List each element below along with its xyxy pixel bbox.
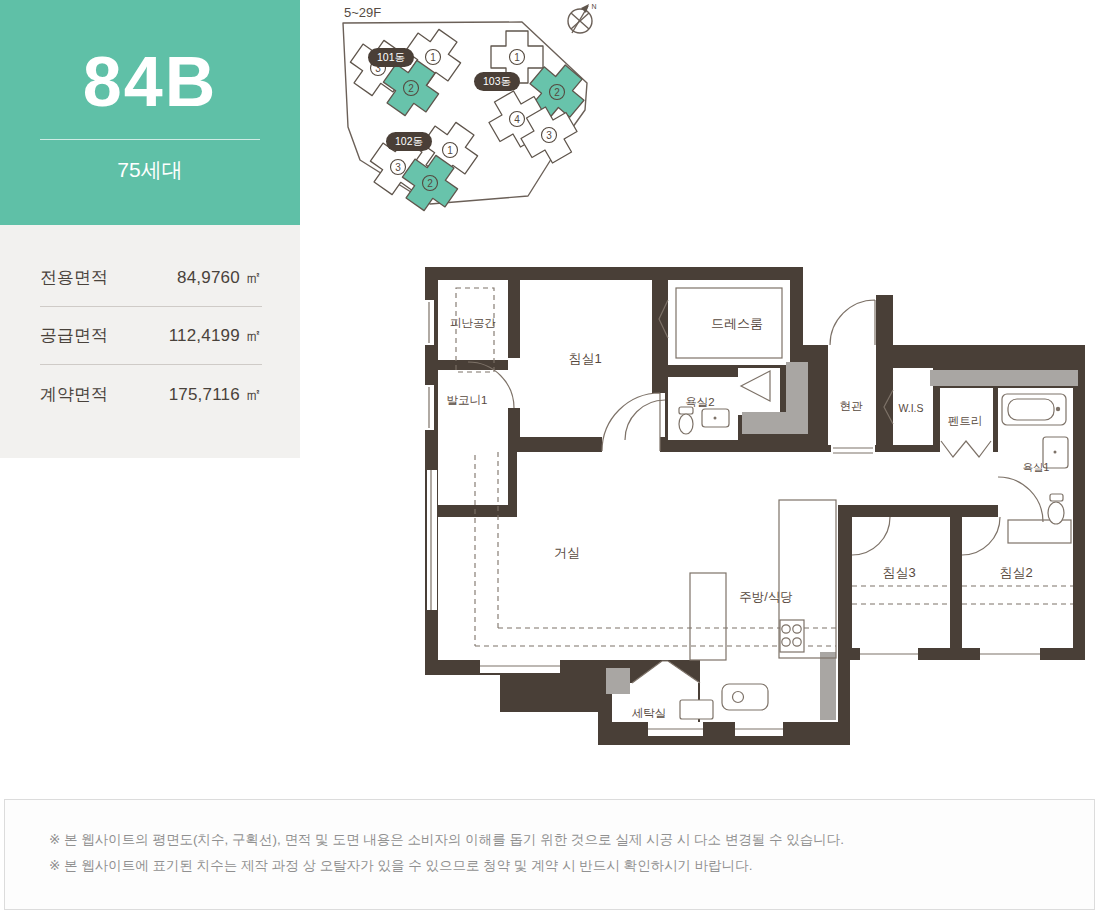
svg-text:1: 1 (447, 145, 453, 156)
svg-text:2: 2 (554, 87, 560, 98)
svg-text:1: 1 (514, 52, 520, 63)
room-label-bedroom3: 침실3 (882, 565, 915, 580)
washer (680, 700, 713, 719)
disclaimer-box: ※ 본 웹사이트의 평면도(치수, 구획선), 면적 및 도면 내용은 소비자의… (4, 799, 1095, 910)
room-label-wis: W.I.S (898, 402, 923, 414)
room-label-bedroom2: 침실2 (999, 565, 1032, 580)
svg-text:2: 2 (408, 83, 414, 94)
divider (40, 139, 260, 140)
area-label: 전용면적 (40, 266, 108, 289)
area-value: 84,9760 ㎡ (177, 266, 262, 289)
area-info-panel: 전용면적 84,9760 ㎡ 공급면적 112,4199 ㎡ 계약면적 175,… (0, 225, 300, 458)
room-label-dressroom: 드레스룸 (711, 316, 763, 331)
kitchen-sink (722, 684, 768, 710)
room-label-pantry: 펜트리 (948, 415, 983, 427)
area-label: 계약면적 (40, 383, 108, 406)
compass-icon: N (568, 3, 597, 33)
room-label-bedroom1: 침실1 (568, 351, 601, 366)
area-value: 175,7116 ㎡ (169, 383, 262, 406)
area-row-contract: 계약면적 175,7116 ㎡ (40, 365, 262, 423)
badge-101: 101동 (368, 48, 414, 67)
compass-n-label: N (591, 3, 596, 10)
households-count: 75세대 (117, 156, 182, 184)
unit-type-code: 84B (83, 47, 217, 117)
svg-text:102동: 102동 (395, 135, 423, 147)
site-plan: 5~29F N 3 1 2 3 1 2 1 2 4 3 101동 102동 10… (335, 0, 625, 215)
svg-text:101동: 101동 (377, 51, 405, 63)
area-row-exclusive: 전용면적 84,9760 ㎡ (40, 249, 262, 307)
room-label-kitchen: 주방/식당 (739, 590, 792, 604)
room-label-entry: 현관 (840, 400, 864, 412)
toilet-bath1 (1050, 494, 1063, 501)
area-value: 112,4199 ㎡ (169, 324, 262, 347)
svg-text:1: 1 (430, 52, 436, 63)
room-label-balcony1: 발코니1 (447, 394, 488, 406)
room-label-refuge: 피난공간 (450, 317, 496, 329)
floors-label: 5~29F (344, 5, 381, 20)
room-label-laundry: 세탁실 (632, 707, 667, 719)
svg-text:103동: 103동 (483, 75, 511, 87)
room-label-bath1: 욕실1 (1023, 461, 1050, 473)
toilet-bath2 (679, 407, 693, 414)
room-label-bath2: 욕실2 (685, 396, 714, 408)
svg-text:4: 4 (514, 114, 520, 125)
svg-text:2: 2 (427, 178, 433, 189)
floor-plan: 피난공간 발코니1 침실1 드레스룸 욕실2 현관 W.I.S 펜트리 욕실1 … (420, 252, 1100, 757)
badge-103: 103동 (474, 72, 520, 91)
stove-icon (780, 620, 804, 652)
svg-text:3: 3 (395, 162, 401, 173)
svg-text:3: 3 (546, 130, 552, 141)
area-row-supply: 공급면적 112,4199 ㎡ (40, 307, 262, 365)
unit-type-panel: 84B 75세대 (0, 0, 300, 225)
area-label: 공급면적 (40, 324, 108, 347)
room-label-living: 거실 (554, 545, 580, 560)
disclaimer-line-1: ※ 본 웹사이트의 평면도(치수, 구획선), 면적 및 도면 내용은 소비자의… (49, 827, 1074, 853)
disclaimer-line-2: ※ 본 웹사이트에 표기된 치수는 제작 과정 상 오탈자가 있을 수 있으므로… (49, 853, 1074, 879)
badge-102: 102동 (386, 132, 432, 151)
